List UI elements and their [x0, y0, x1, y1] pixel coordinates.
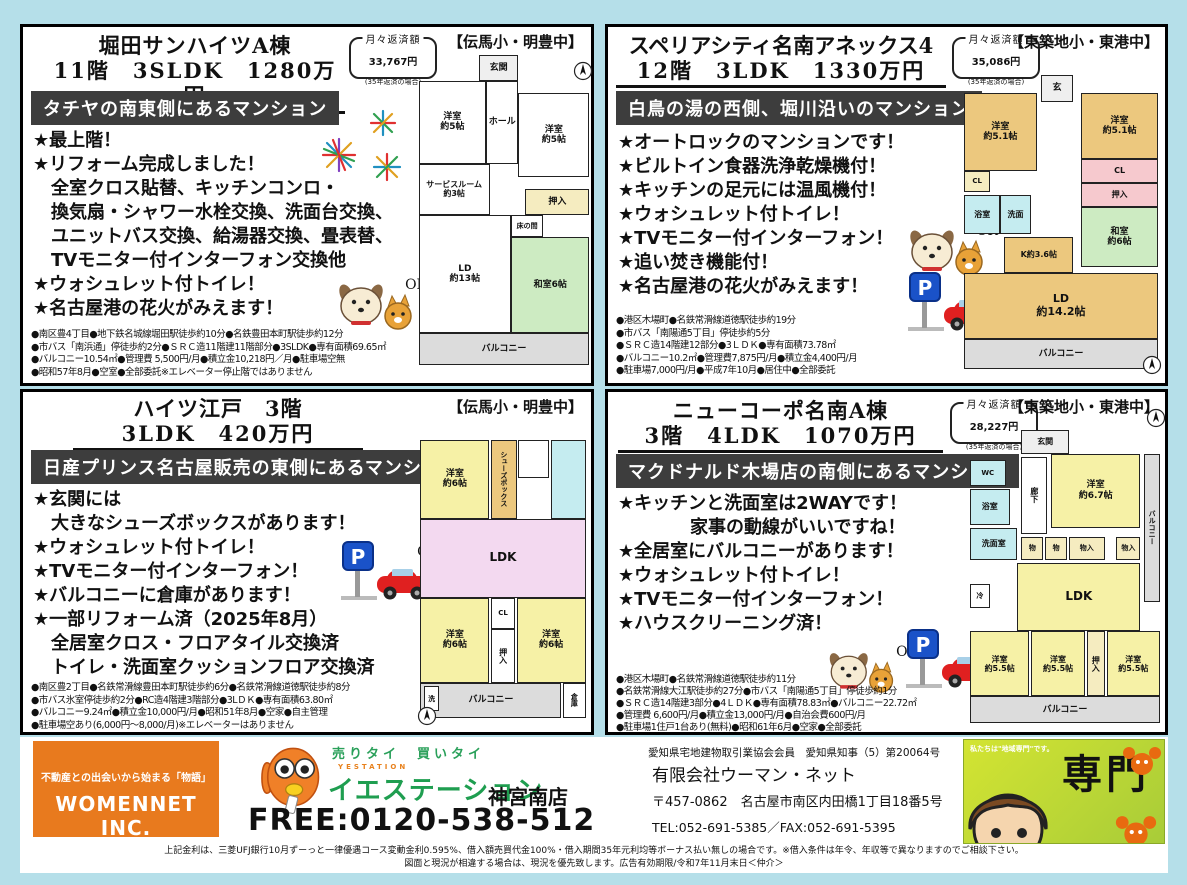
svg-text:P: P — [916, 633, 931, 657]
listing-panel-1: 堀田サンハイツA棟 11階 3SLDK 1280万円 月々返済額 33,767円… — [20, 24, 594, 386]
feature-line: 大きなシューズボックスがあります！ — [33, 512, 408, 536]
listing2-title-price: 12階 3LDK 1330万円 — [616, 58, 946, 83]
womennet-tagline: 不動産との出会いから始まる「物語」 — [33, 769, 219, 784]
listing4-title: ニューコーポ名南A棟 3階 4LDK 1070万円 — [618, 398, 943, 453]
listing2-details: ●港区木場町●名鉄常滑線道徳駅徒歩約19分 ●市バス「南陽通5丁目」停徒歩約5分… — [616, 315, 961, 378]
license-line: 愛知県宅地建物取引業協会会員 愛知県知事（5）第20064号 — [648, 745, 940, 760]
crab-icon — [1114, 813, 1158, 844]
plan-room: バルコニー — [420, 683, 561, 718]
payment-label: 月々返済額 — [363, 31, 424, 46]
phone-number: FREE:0120-538-512 — [248, 803, 595, 838]
listing4-details: ●港区木場町●名鉄常滑線道徳駅徒歩約11分 ●名鉄常滑線大江駅徒歩約27分●市バ… — [616, 674, 961, 734]
senmon-ad: 私たちは"地域専門"です。 専門 — [963, 739, 1165, 844]
listing1-school-district: 【伝馬小・明豊中】 — [448, 31, 583, 52]
detail-line: ●市バス「南陽通5丁目」停徒歩約5分 — [616, 328, 961, 341]
feature-line: ★最上階！ — [33, 129, 408, 153]
plan-room: CL — [1081, 159, 1158, 183]
listing4-location-banner: マクドナルド木場店の南側にあるマンション — [616, 454, 1019, 488]
payment-note: (35年返済の場合) — [365, 78, 421, 86]
payment-value: 33,767円 — [369, 57, 418, 68]
feature-line: ★ウォシュレット付トイレ！ — [618, 564, 963, 588]
plan-room: サービスルーム 約3帖 — [419, 164, 490, 215]
listing2-school-district: 【東築地小・東港中】 — [1009, 31, 1159, 52]
plan-room: 物入 — [1116, 537, 1140, 561]
listing2-title: スペリアシティ名南アネックス4 12階 3LDK 1330万円 — [616, 33, 946, 88]
payment-value: 35,086円 — [972, 57, 1021, 68]
listing4-title-name: ニューコーポ名南A棟 — [618, 398, 943, 423]
womennet-name: WOMENNET INC. — [33, 792, 219, 840]
listing2-location-banner: 白鳥の湯の西側、堀川沿いのマンション — [616, 91, 982, 125]
plan-room: ホール — [486, 81, 518, 164]
plan-room: LD 約14.2帖 — [964, 273, 1158, 339]
plan-room: 洋室 約5.1帖 — [964, 93, 1037, 171]
plan-room: 洋室 約6帖 — [517, 598, 586, 683]
plan-room: 押入 — [525, 189, 589, 215]
feature-line: ★一部リフォーム済（2025年8月） — [33, 608, 408, 632]
plan-room: 洋室 約5.5帖 — [1031, 631, 1084, 696]
disclaimer-rates: 上記金利は、三菱UFJ銀行10月ずーっと一律優遇コース変動金利0.595%、借入… — [20, 843, 1168, 856]
detail-line: ●市バス氷室停徒歩約2分●RC造4階建3階部分●3LＤＫ●専有面積63.80㎡ — [31, 695, 416, 708]
listing4-features: ★キッチンと洗面室は2WAYです！ 家事の動線がいいですね！ ★全居室にバルコニ… — [618, 492, 963, 636]
pets-ok-icon: OK — [335, 277, 427, 331]
plan-room: 浴室 — [964, 195, 1000, 234]
feature-line: ★オートロックのマンションです！ — [618, 131, 958, 155]
listing2-floorplan: 玄 洋室 約5.1帖 洋室 約5.1帖 CL 浴室 洗面 CL 押入 K約3.6… — [960, 75, 1162, 375]
plan-room: 洋室 約5.5帖 — [1107, 631, 1160, 696]
plan-room: 洗面 — [1000, 195, 1030, 234]
listing1-details: ●南区豊4丁目●地下鉄名城線堀田駅徒歩約10分●名鉄豊田本町駅徒歩約12分 ●市… — [31, 329, 416, 379]
plan-room: WC — [970, 460, 1006, 487]
detail-line: ●南区豊2丁目●名鉄常滑線豊田本町駅徒歩約6分●名鉄常滑線道徳駅徒歩約8分 — [31, 682, 416, 695]
plan-room: 和室 約6帖 — [1081, 207, 1158, 267]
plan-room: 玄 — [1041, 75, 1073, 102]
plan-room: 冷 — [970, 584, 990, 608]
plan-room: 玄関 — [1021, 430, 1069, 454]
plan-room: 洗面室 — [970, 528, 1018, 561]
plan-room — [518, 440, 549, 478]
disclaimer-validity: 図面と現況が相違する場合は、現況を優先致します。広告有効期限/令和7年11月末日… — [20, 856, 1168, 869]
listing3-floorplan: 洋室 約6帖 シューズボックス LDK 洋室 約6帖 CL 押入 洋室 約6帖 … — [417, 408, 589, 724]
feature-line: 全室クロス貼替、キッチンコンロ・ — [33, 177, 408, 201]
plan-room: 洋室 約6.7帖 — [1051, 454, 1140, 528]
crab-icon — [1122, 744, 1162, 778]
listing2-title-name: スペリアシティ名南アネックス4 — [616, 33, 946, 58]
plan-room: LDK — [420, 519, 585, 598]
plan-room: 和室6帖 — [511, 237, 589, 333]
listing1-location-banner: タチヤの南東側にあるマンション — [31, 91, 339, 125]
plan-room: 洋室 約5帖 — [419, 81, 487, 164]
cartoon-girl-icon — [963, 771, 1066, 844]
listing-panel-2: スペリアシティ名南アネックス4 12階 3LDK 1330万円 月々返済額 35… — [605, 24, 1168, 386]
feature-line: ★リフォーム完成しました！ — [33, 153, 408, 177]
detail-line: ●ＳＲＣ造14階建3部分●4ＬＤＫ●専有面積78.83㎡●バルコニー22.72㎡ — [616, 698, 961, 710]
plan-room: CL — [491, 598, 515, 630]
feature-line: ユニットバス交換、給湯器交換、畳表替、 — [33, 225, 408, 249]
listing1-floorplan: 玄関 洋室 約5帖 ホール 洋室 約5帖 サービスルーム 約3帖 押入 LD 約… — [415, 55, 593, 375]
senmon-tagline: 私たちは"地域専門"です。 — [970, 744, 1054, 754]
plan-room: 洋室 約5帖 — [518, 93, 589, 176]
detail-line: ●南区豊4丁目●地下鉄名城線堀田駅徒歩約10分●名鉄豊田本町駅徒歩約12分 — [31, 329, 416, 342]
compass-icon — [1142, 355, 1162, 375]
detail-line: ●駐車場1住戸1台あり(無料)●昭和61年6月●空家●全部委託 — [616, 722, 961, 734]
detail-line: ●市バス「南浜通」停徒歩約2分●ＳＲＣ造11階建11階部分●3SLDK●専有面積… — [31, 342, 416, 355]
feature-line: TVモニター付インターフォン交換他 — [33, 249, 408, 273]
compass-icon — [573, 61, 593, 81]
listing4-school-district: 【東築地小・東港中】 — [1009, 396, 1159, 417]
detail-line: ●港区木場町●名鉄常滑線道徳駅徒歩約11分 — [616, 674, 961, 686]
tel-fax: TEL:052-691-5385／FAX:052-691-5395 — [652, 817, 896, 836]
plan-room: 洋室 約5.5帖 — [970, 631, 1029, 696]
detail-line: ●名鉄常滑線大江駅徒歩約27分●市バス「南陽通5丁目」停徒歩約1分 — [616, 686, 961, 698]
detail-line: ●駐車場7,000円/月●平成7年10月●居住中●全部委託 — [616, 365, 961, 378]
listing3-location-banner: 日産プリンス名古屋販売の東側にあるマンション — [31, 450, 472, 484]
feature-line: 全居室クロス・フロアタイル交換済 — [33, 632, 408, 656]
plan-room: 床の間 — [511, 215, 543, 237]
listing1-title-name: 堀田サンハイツA棟 — [45, 33, 345, 58]
feature-line: ★キッチンと洗面室は2WAYです！ — [618, 492, 963, 516]
womennet-box: 不動産との出会いから始まる「物語」 WOMENNET INC. — [33, 741, 219, 837]
plan-room: 洋室 約5.1帖 — [1081, 93, 1158, 159]
listing4-floorplan: 玄関 WC 浴室 洗面室 廊下 洋室 約6.7帖 物 物 物入 LDK 冷 物入… — [966, 430, 1164, 726]
plan-room: 物 — [1021, 537, 1043, 561]
plan-room — [551, 440, 585, 519]
listing3-details: ●南区豊2丁目●名鉄常滑線豊田本町駅徒歩約6分●名鉄常滑線道徳駅徒歩約8分 ●市… — [31, 682, 416, 732]
detail-line: ●港区木場町●名鉄常滑線道徳駅徒歩約19分 — [616, 315, 961, 328]
listing-panel-4: ニューコーポ名南A棟 3階 4LDK 1070万円 月々返済額 28,227円 … — [605, 389, 1168, 735]
feature-line: 家事の動線がいいですね！ — [618, 516, 963, 540]
feature-line: ★ビルトイン食器洗浄乾燥機付！ — [618, 155, 958, 179]
plan-room: 浴室 — [970, 489, 1010, 525]
detail-line: ●管理費 6,600円/月●積立金13,000円/月●自治会費600円/月 — [616, 710, 961, 722]
plan-room: 押入 — [491, 629, 515, 683]
plan-room: シューズボックス — [491, 440, 517, 519]
detail-line: ●昭和57年8月●空室●全部委託※エレベーター停止階ではありません — [31, 367, 416, 380]
plan-room: バルコニー — [964, 339, 1158, 369]
brand-catchphrase: 売りタイ 買いタイ — [332, 743, 485, 762]
compass-icon — [1146, 408, 1166, 428]
plan-room: バルコニー — [419, 333, 590, 365]
plan-room: 廊下 — [1021, 457, 1047, 534]
company-address: 〒457-0862 名古屋市南区内田橋1丁目18番5号 — [652, 791, 943, 810]
plan-room: 洋室 約6帖 — [420, 598, 489, 683]
plan-room: 押入 — [1081, 183, 1158, 207]
plan-room: 物入 — [1069, 537, 1105, 561]
feature-line: 換気扇・シャワー水栓交換、洗面台交換、 — [33, 201, 408, 225]
plan-room: 物 — [1045, 537, 1067, 561]
feature-line: ★玄関には — [33, 488, 408, 512]
footer: 不動産との出会いから始まる「物語」 WOMENNET INC. 売りタイ 買いタ… — [20, 737, 1168, 873]
listing4-title-price: 3階 4LDK 1070万円 — [618, 423, 943, 448]
plan-room: 押入 — [1087, 631, 1105, 696]
feature-line: トイレ・洗面室クッションフロア交換済 — [33, 656, 408, 680]
plan-room: LD 約13帖 — [419, 215, 512, 333]
listing-panel-3: ハイツ江戸 3階 3LDK 420万円 【伝馬小・明豊中】 日産プリンス名古屋販… — [20, 389, 594, 735]
svg-text:P: P — [918, 276, 933, 300]
plan-room: K約3.6帖 — [1004, 237, 1073, 273]
detail-line: ●バルコニー9.24㎡●積立金10,000円/月●昭和51年8月●空家●自主管理 — [31, 707, 416, 720]
compass-icon — [417, 706, 437, 726]
svg-text:P: P — [351, 545, 366, 569]
plan-room: 倉庫 — [563, 683, 585, 718]
detail-line: ●ＳＲＣ造14階建12部分●3ＬＤＫ●専有面積73.78㎡ — [616, 340, 961, 353]
plan-room: 洋室 約6帖 — [420, 440, 489, 519]
plan-room: LDK — [1017, 563, 1140, 631]
listing3-title-price: 3LDK 420万円 — [73, 421, 363, 446]
detail-line: ●バルコニー10.2㎡●管理費7,875円/月●積立金4,400円/月 — [616, 353, 961, 366]
plan-room: バルコニー — [970, 696, 1160, 723]
detail-line: ●バルコニー10.54㎡●管理費 5,500円/月●積立金10,218円／月●駐… — [31, 354, 416, 367]
company-name: 有限会社ウーマン・ネット — [652, 761, 856, 786]
listing3-title-name: ハイツ江戸 3階 — [73, 396, 363, 421]
plan-room: CL — [964, 171, 990, 192]
feature-line: ★全居室にバルコニーがあります！ — [618, 540, 963, 564]
feature-line: ★TVモニター付インターフォン！ — [618, 588, 963, 612]
plan-room: 玄関 — [479, 55, 518, 81]
feature-line: ★キッチンの足元には温風機付！ — [618, 179, 958, 203]
detail-line: ●駐車場空あり(6,000円〜8,000/月)※エレベーターはありません — [31, 720, 416, 733]
listing3-title: ハイツ江戸 3階 3LDK 420万円 — [73, 396, 363, 451]
plan-room: バルコニー — [1144, 454, 1160, 602]
